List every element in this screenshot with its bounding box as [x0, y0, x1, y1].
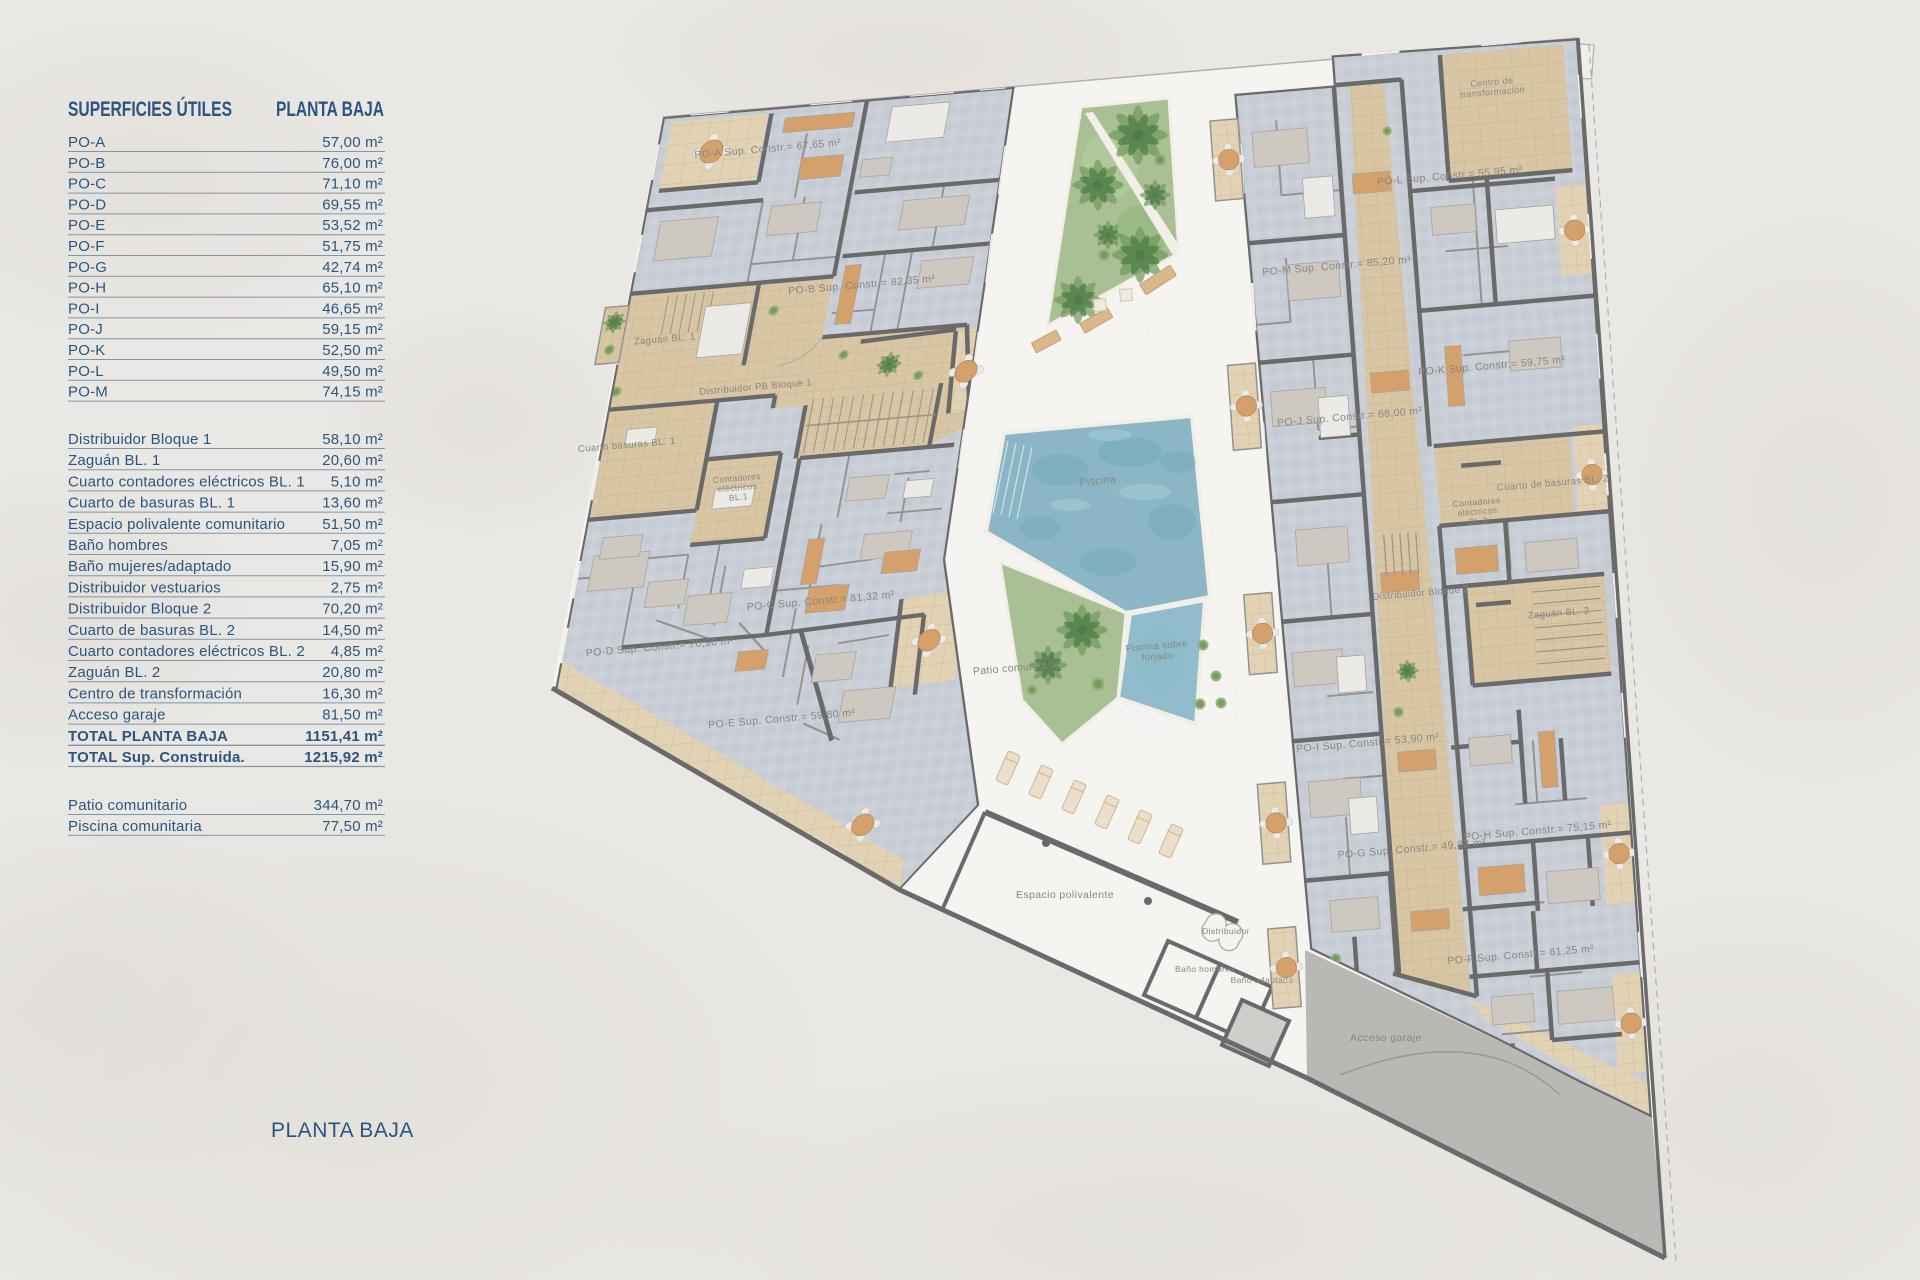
svg-text:TOTAL PLANTA BAJA: TOTAL PLANTA BAJA	[68, 728, 228, 745]
svg-text:4,85 m²: 4,85 m²	[331, 643, 383, 660]
svg-text:Patio comunitario: Patio comunitario	[68, 797, 187, 814]
svg-text:PLANTA BAJA: PLANTA BAJA	[271, 1119, 414, 1142]
svg-text:57,00 m²: 57,00 m²	[322, 134, 383, 151]
svg-text:PO-E: PO-E	[68, 217, 105, 234]
svg-text:Acceso garaje: Acceso garaje	[1350, 1032, 1422, 1044]
svg-text:Distribuidor Bloque 2: Distribuidor Bloque 2	[68, 601, 211, 618]
svg-text:Distribuidor Bloque 1: Distribuidor Bloque 1	[68, 431, 211, 448]
svg-text:42,74 m²: 42,74 m²	[322, 259, 383, 276]
svg-text:46,65 m²: 46,65 m²	[322, 300, 383, 317]
svg-text:71,10 m²: 71,10 m²	[322, 176, 383, 193]
svg-text:14,50 m²: 14,50 m²	[322, 622, 383, 639]
svg-text:81,50 m²: 81,50 m²	[322, 707, 383, 724]
svg-text:PO-L: PO-L	[68, 363, 104, 380]
svg-text:53,52 m²: 53,52 m²	[322, 217, 383, 234]
svg-text:1151,41 m²: 1151,41 m²	[305, 728, 383, 745]
svg-text:Centro de transformación: Centro de transformación	[68, 685, 242, 702]
svg-text:Baño hombres: Baño hombres	[1175, 964, 1235, 974]
svg-text:69,55 m²: 69,55 m²	[322, 196, 383, 213]
svg-text:PO-H: PO-H	[68, 280, 106, 297]
svg-text:PLANTA BAJA: PLANTA BAJA	[276, 98, 384, 121]
svg-text:13,60 m²: 13,60 m²	[322, 495, 383, 512]
svg-text:TOTAL Sup. Construida.: TOTAL Sup. Construida.	[68, 749, 245, 766]
svg-text:Baño mujeres/adaptado: Baño mujeres/adaptado	[68, 558, 231, 575]
svg-text:Cuarto de basuras BL. 2: Cuarto de basuras BL. 2	[68, 622, 235, 639]
svg-text:Espacio polivalente: Espacio polivalente	[1016, 889, 1114, 901]
svg-text:PO-M: PO-M	[68, 384, 108, 401]
svg-text:15,90 m²: 15,90 m²	[322, 558, 383, 575]
svg-text:SUPERFICIES ÚTILES: SUPERFICIES ÚTILES	[68, 97, 232, 121]
svg-text:51,75 m²: 51,75 m²	[322, 238, 383, 255]
svg-text:Cuarto de basuras BL. 1: Cuarto de basuras BL. 1	[68, 495, 235, 512]
svg-text:20,60 m²: 20,60 m²	[322, 452, 383, 469]
svg-text:65,10 m²: 65,10 m²	[322, 280, 383, 297]
svg-text:16,30 m²: 16,30 m²	[322, 685, 383, 702]
svg-text:PO-C: PO-C	[68, 176, 106, 193]
svg-text:70,20 m²: 70,20 m²	[322, 601, 383, 618]
svg-text:2,75 m²: 2,75 m²	[331, 579, 383, 596]
svg-text:74,15 m²: 74,15 m²	[322, 384, 383, 401]
svg-text:Acceso garaje: Acceso garaje	[68, 707, 166, 724]
svg-text:PO-K: PO-K	[68, 342, 105, 359]
svg-text:7,05 m²: 7,05 m²	[331, 537, 383, 554]
svg-text:PO-F: PO-F	[68, 238, 105, 255]
svg-text:52,50 m²: 52,50 m²	[322, 342, 383, 359]
svg-text:PO-G: PO-G	[68, 259, 107, 276]
svg-text:Cuarto contadores eléctricos B: Cuarto contadores eléctricos BL. 2	[68, 643, 305, 660]
svg-text:PO-J: PO-J	[68, 321, 103, 338]
svg-text:Espacio polivalente comunitari: Espacio polivalente comunitario	[68, 516, 285, 533]
svg-text:PO-I: PO-I	[68, 300, 100, 317]
svg-text:58,10 m²: 58,10 m²	[322, 431, 383, 448]
svg-text:77,50 m²: 77,50 m²	[322, 818, 383, 835]
svg-text:59,15 m²: 59,15 m²	[322, 321, 383, 338]
svg-text:344,70 m²: 344,70 m²	[314, 797, 383, 814]
svg-text:Zaguán BL. 1: Zaguán BL. 1	[68, 452, 160, 469]
svg-text:1215,92 m²: 1215,92 m²	[304, 749, 383, 766]
svg-text:51,50 m²: 51,50 m²	[322, 516, 383, 533]
svg-text:Piscina comunitaria: Piscina comunitaria	[68, 818, 202, 835]
svg-text:20,80 m²: 20,80 m²	[322, 664, 383, 681]
svg-text:49,50 m²: 49,50 m²	[322, 363, 383, 380]
svg-text:76,00 m²: 76,00 m²	[322, 155, 383, 172]
svg-text:Distribuidor: Distribuidor	[1202, 926, 1250, 936]
svg-text:Baño adaptado: Baño adaptado	[1231, 975, 1294, 985]
svg-text:PO-A: PO-A	[68, 134, 105, 151]
svg-text:PO-B: PO-B	[68, 155, 105, 172]
svg-text:PO-D: PO-D	[68, 196, 106, 213]
svg-text:Distribuidor vestuarios: Distribuidor vestuarios	[68, 579, 221, 596]
svg-text:Baño hombres: Baño hombres	[68, 537, 168, 554]
svg-text:5,10 m²: 5,10 m²	[331, 473, 383, 490]
svg-text:Cuarto contadores eléctricos B: Cuarto contadores eléctricos BL. 1	[68, 473, 305, 490]
svg-text:Zaguán BL. 2: Zaguán BL. 2	[68, 664, 160, 681]
